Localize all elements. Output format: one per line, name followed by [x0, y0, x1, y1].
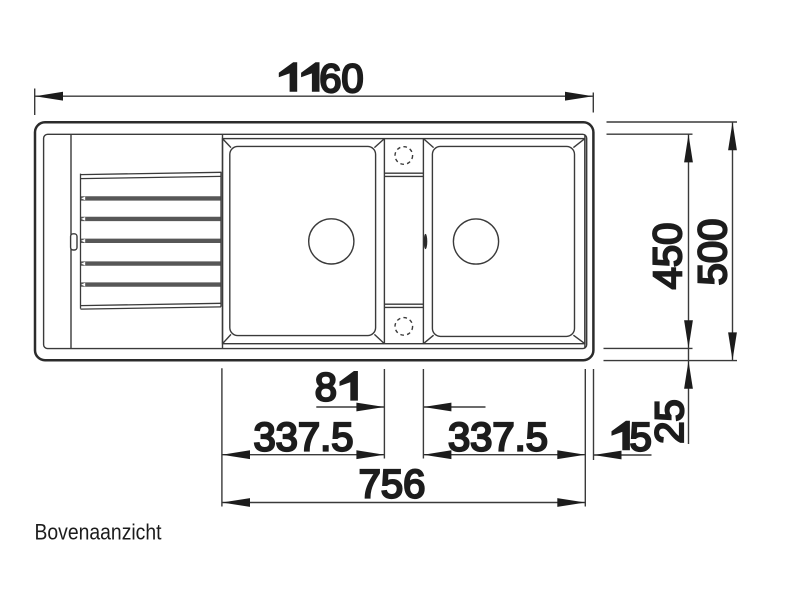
svg-text:25: 25 [648, 399, 692, 444]
svg-text:8: 8 [315, 366, 337, 410]
svg-text:337.5: 337.5 [448, 415, 548, 459]
svg-text:Bovenaanzicht: Bovenaanzicht [35, 520, 162, 545]
svg-text:5: 5 [630, 415, 652, 459]
svg-text:450: 450 [646, 223, 690, 290]
svg-text:500: 500 [691, 219, 735, 286]
svg-text:756: 756 [359, 462, 426, 506]
svg-text:60: 60 [319, 57, 364, 101]
svg-text:337.5: 337.5 [253, 415, 353, 459]
